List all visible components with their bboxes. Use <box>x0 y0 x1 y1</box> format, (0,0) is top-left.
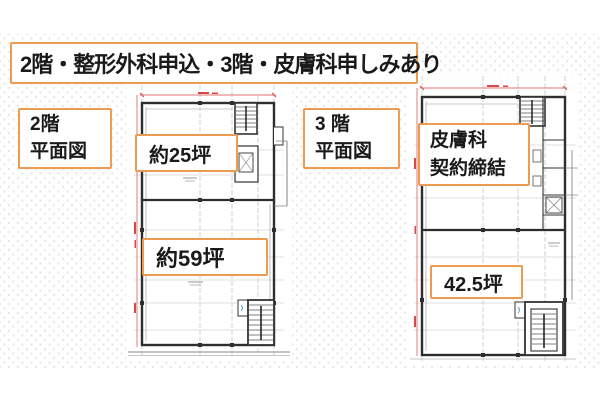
floor-plan-3f <box>403 70 583 368</box>
floor-plan-2f <box>120 72 300 364</box>
caption-2f-line2: 平面図 <box>30 139 110 166</box>
area-label-2f-upper-text: 約25坪 <box>149 139 211 168</box>
status-label-3f: 皮膚科 契約締結 <box>418 123 530 186</box>
title-text: 2階・整形外科申込・3階・皮膚科申しみあり <box>20 47 441 79</box>
stairwell-top-2f-icon <box>235 103 257 134</box>
caption-2f: 2階 平面図 <box>18 108 112 169</box>
area-label-3f: 42.5坪 <box>430 265 523 299</box>
elevator-2f-icon <box>235 146 258 182</box>
caption-3f: 3 階 平面図 <box>303 108 400 169</box>
stairwell-top-3f-icon <box>520 97 545 126</box>
status-label-3f-line2: 契約締結 <box>430 155 528 183</box>
slide-canvas: 2階・整形外科申込・3階・皮膚科申しみあり 2階 平面図 約25坪 約59坪 3… <box>0 0 600 400</box>
plan-2f-wall-bump <box>274 127 283 145</box>
area-label-2f-lower-text: 約59坪 <box>156 241 224 273</box>
area-label-2f-lower: 約59坪 <box>142 238 268 276</box>
caption-3f-line2: 平面図 <box>315 139 398 166</box>
area-label-3f-text: 42.5坪 <box>444 268 503 297</box>
caption-3f-line1: 3 階 <box>315 112 398 139</box>
status-label-3f-line1: 皮膚科 <box>430 127 528 155</box>
title-banner: 2階・整形外科申込・3階・皮膚科申しみあり <box>10 42 418 84</box>
area-label-2f-upper: 約25坪 <box>135 134 238 172</box>
caption-2f-line1: 2階 <box>30 112 110 139</box>
